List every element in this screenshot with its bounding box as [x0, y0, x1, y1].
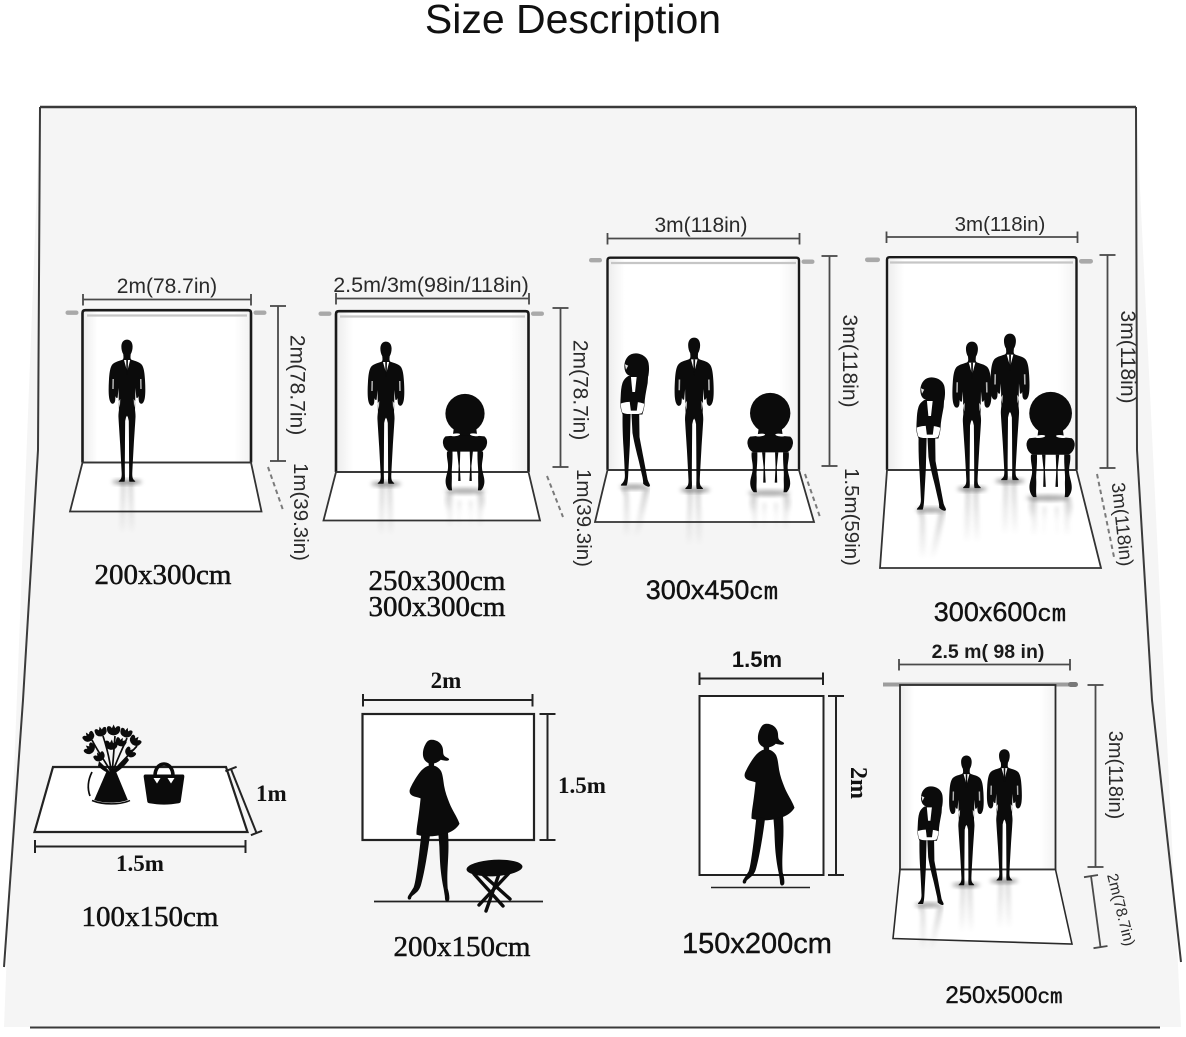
svg-text:1m(39.3in): 1m(39.3in) — [289, 463, 312, 561]
svg-text:150x200cm: 150x200cm — [682, 928, 832, 960]
svg-text:1.5m: 1.5m — [558, 773, 606, 798]
svg-text:300x600cm: 300x600cm — [934, 597, 1066, 629]
svg-text:2m: 2m — [845, 767, 871, 799]
svg-text:1.5m: 1.5m — [116, 851, 164, 876]
svg-text:3m(118in): 3m(118in) — [1104, 731, 1126, 820]
svg-text:Size Description: Size Description — [425, 0, 721, 42]
svg-text:3m(118in): 3m(118in) — [1116, 311, 1139, 404]
svg-text:100x150cm: 100x150cm — [82, 901, 219, 933]
svg-text:2.5m/3m(98in/118in): 2.5m/3m(98in/118in) — [333, 273, 529, 297]
svg-text:1m: 1m — [256, 781, 287, 806]
svg-text:2m(78.7in): 2m(78.7in) — [117, 275, 217, 298]
svg-text:2.5 m( 98 in): 2.5 m( 98 in) — [932, 641, 1045, 663]
svg-text:3m(118in): 3m(118in) — [838, 315, 861, 408]
svg-text:2m(78.7in): 2m(78.7in) — [286, 335, 309, 435]
svg-text:200x300cm: 200x300cm — [95, 559, 232, 591]
svg-text:2m(78.7in): 2m(78.7in) — [569, 340, 592, 440]
svg-text:2m: 2m — [431, 668, 462, 693]
svg-text:250x500cm: 250x500cm — [945, 982, 1062, 1010]
svg-text:300x300cm: 300x300cm — [369, 591, 506, 623]
svg-text:3m(118in): 3m(118in) — [655, 214, 748, 237]
svg-text:3m(118in): 3m(118in) — [955, 213, 1046, 236]
svg-text:1.5m: 1.5m — [732, 647, 782, 672]
svg-text:200x150cm: 200x150cm — [394, 931, 531, 963]
svg-text:1.5m(59in): 1.5m(59in) — [840, 468, 863, 566]
svg-text:300x450cm: 300x450cm — [646, 575, 778, 607]
svg-text:1m(39.3in): 1m(39.3in) — [572, 469, 595, 567]
